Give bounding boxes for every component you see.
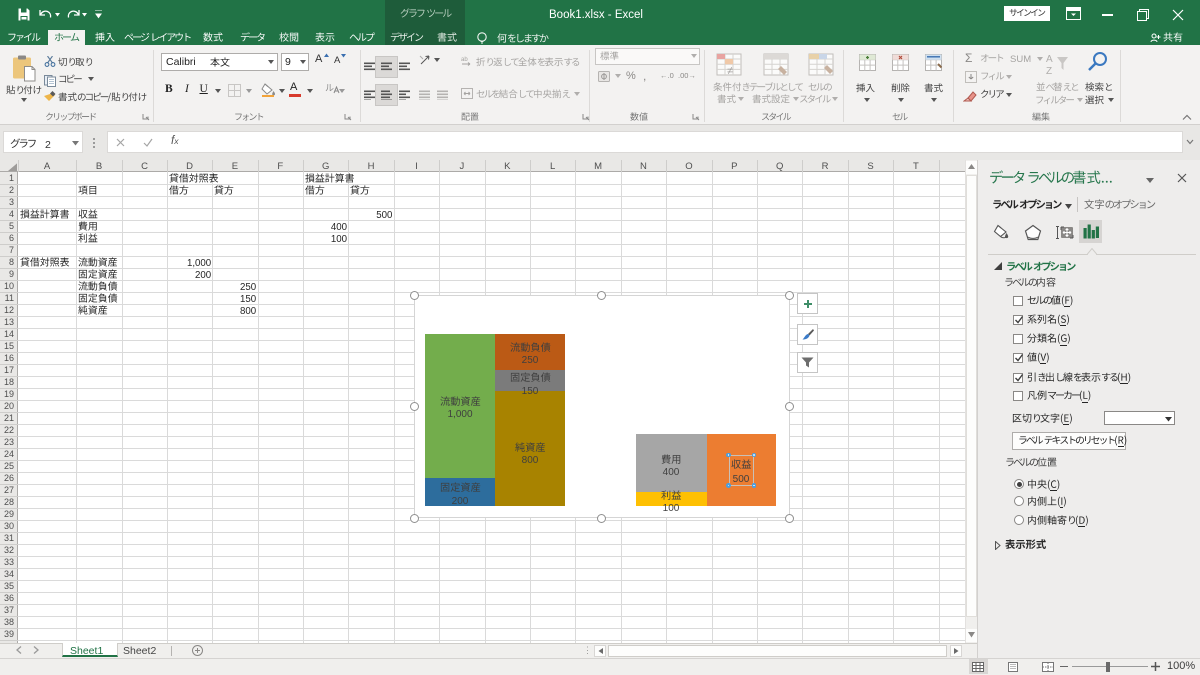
- svg-text:Z: Z: [1046, 66, 1052, 76]
- svg-text:ab: ab: [461, 57, 468, 63]
- svg-text:≠: ≠: [727, 65, 733, 77]
- svg-text:A: A: [1046, 54, 1053, 65]
